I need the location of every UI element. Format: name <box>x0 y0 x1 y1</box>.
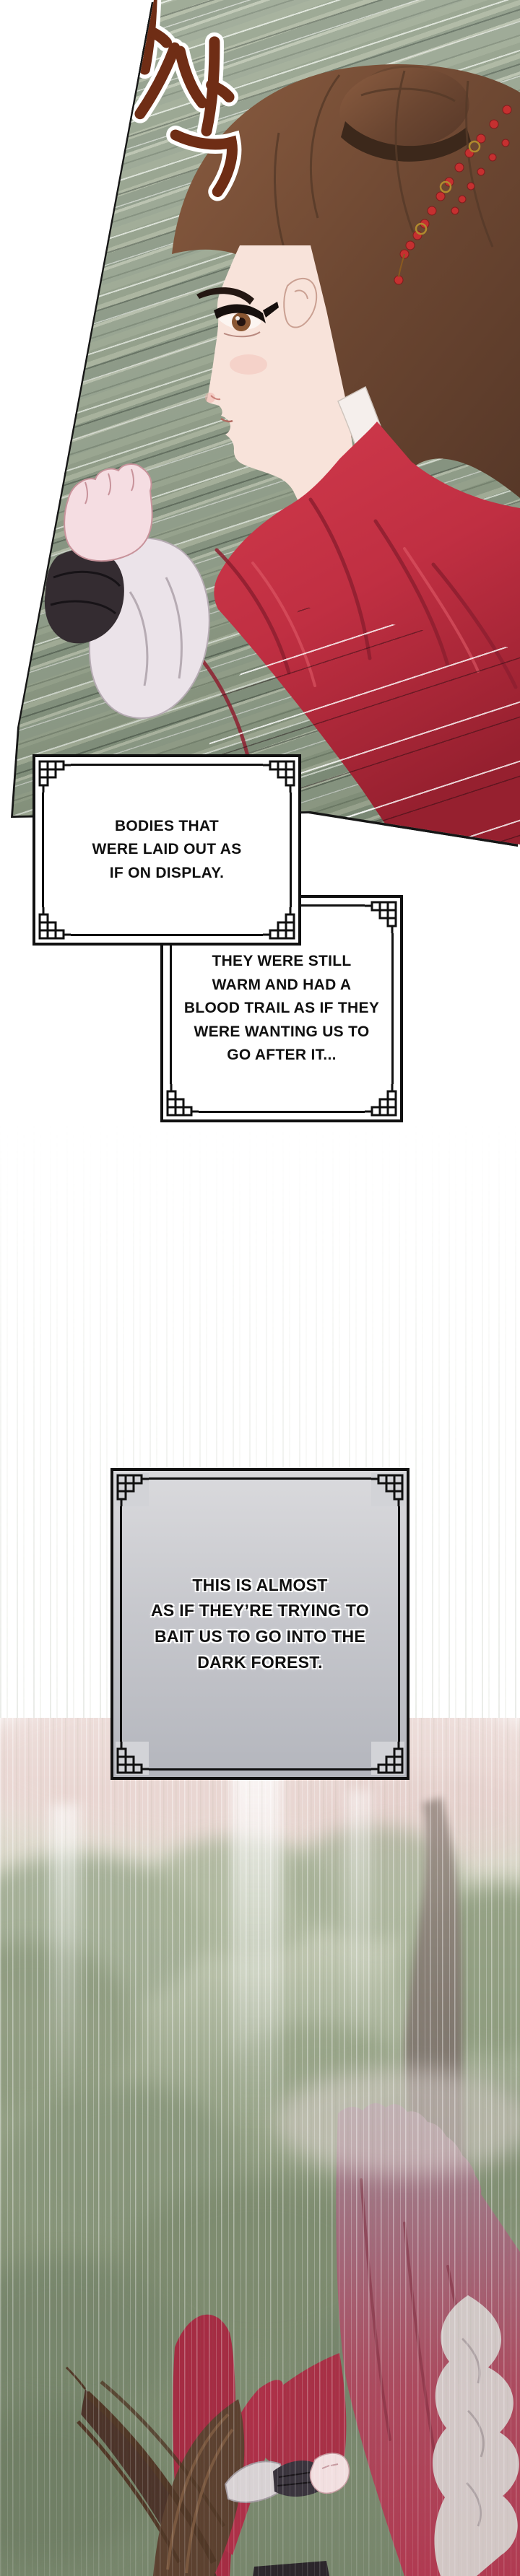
narration-box-1: BODIES THAT WERE LAID OUT AS IF ON DISPL… <box>32 754 301 946</box>
narration-box-3: THIS IS ALMOST AS IF THEY’RE TRYING TO B… <box>110 1468 409 1780</box>
narration-line: AS IF THEY’RE TRYING TO <box>151 1598 369 1624</box>
comic-page: 사삭 <box>0 0 520 2576</box>
motion-streak-background: 사삭 <box>0 0 520 852</box>
narration-line: IF ON DISPLAY. <box>110 862 225 886</box>
narration-line: GO AFTER IT... <box>227 1044 337 1067</box>
sfx-sound-effect-icon <box>0 0 303 217</box>
narration-line: WERE WANTING US TO <box>194 1021 369 1044</box>
fist-and-sleeve <box>45 464 209 718</box>
narration-line: BODIES THAT <box>115 815 219 839</box>
vertical-mist-streaks <box>0 1718 520 2576</box>
action-panel: 사삭 <box>0 0 520 852</box>
narration-line: BLOOD TRAIL AS IF THEY <box>184 997 379 1021</box>
narration-line: DARK FOREST. <box>197 1650 323 1676</box>
narration-line: WERE LAID OUT AS <box>92 838 241 862</box>
narration-line: THIS IS ALMOST <box>192 1573 327 1599</box>
narration-line: WARM AND HAD A <box>212 974 352 997</box>
narration-text: THIS IS ALMOST AS IF THEY’RE TRYING TO B… <box>123 1481 396 1767</box>
dark-forest-scene <box>0 1718 520 2576</box>
narration-text: BODIES THAT WERE LAID OUT AS IF ON DISPL… <box>45 767 288 933</box>
narration-line: THEY WERE STILL <box>212 950 351 974</box>
narration-line: BAIT US TO GO INTO THE <box>155 1624 365 1650</box>
